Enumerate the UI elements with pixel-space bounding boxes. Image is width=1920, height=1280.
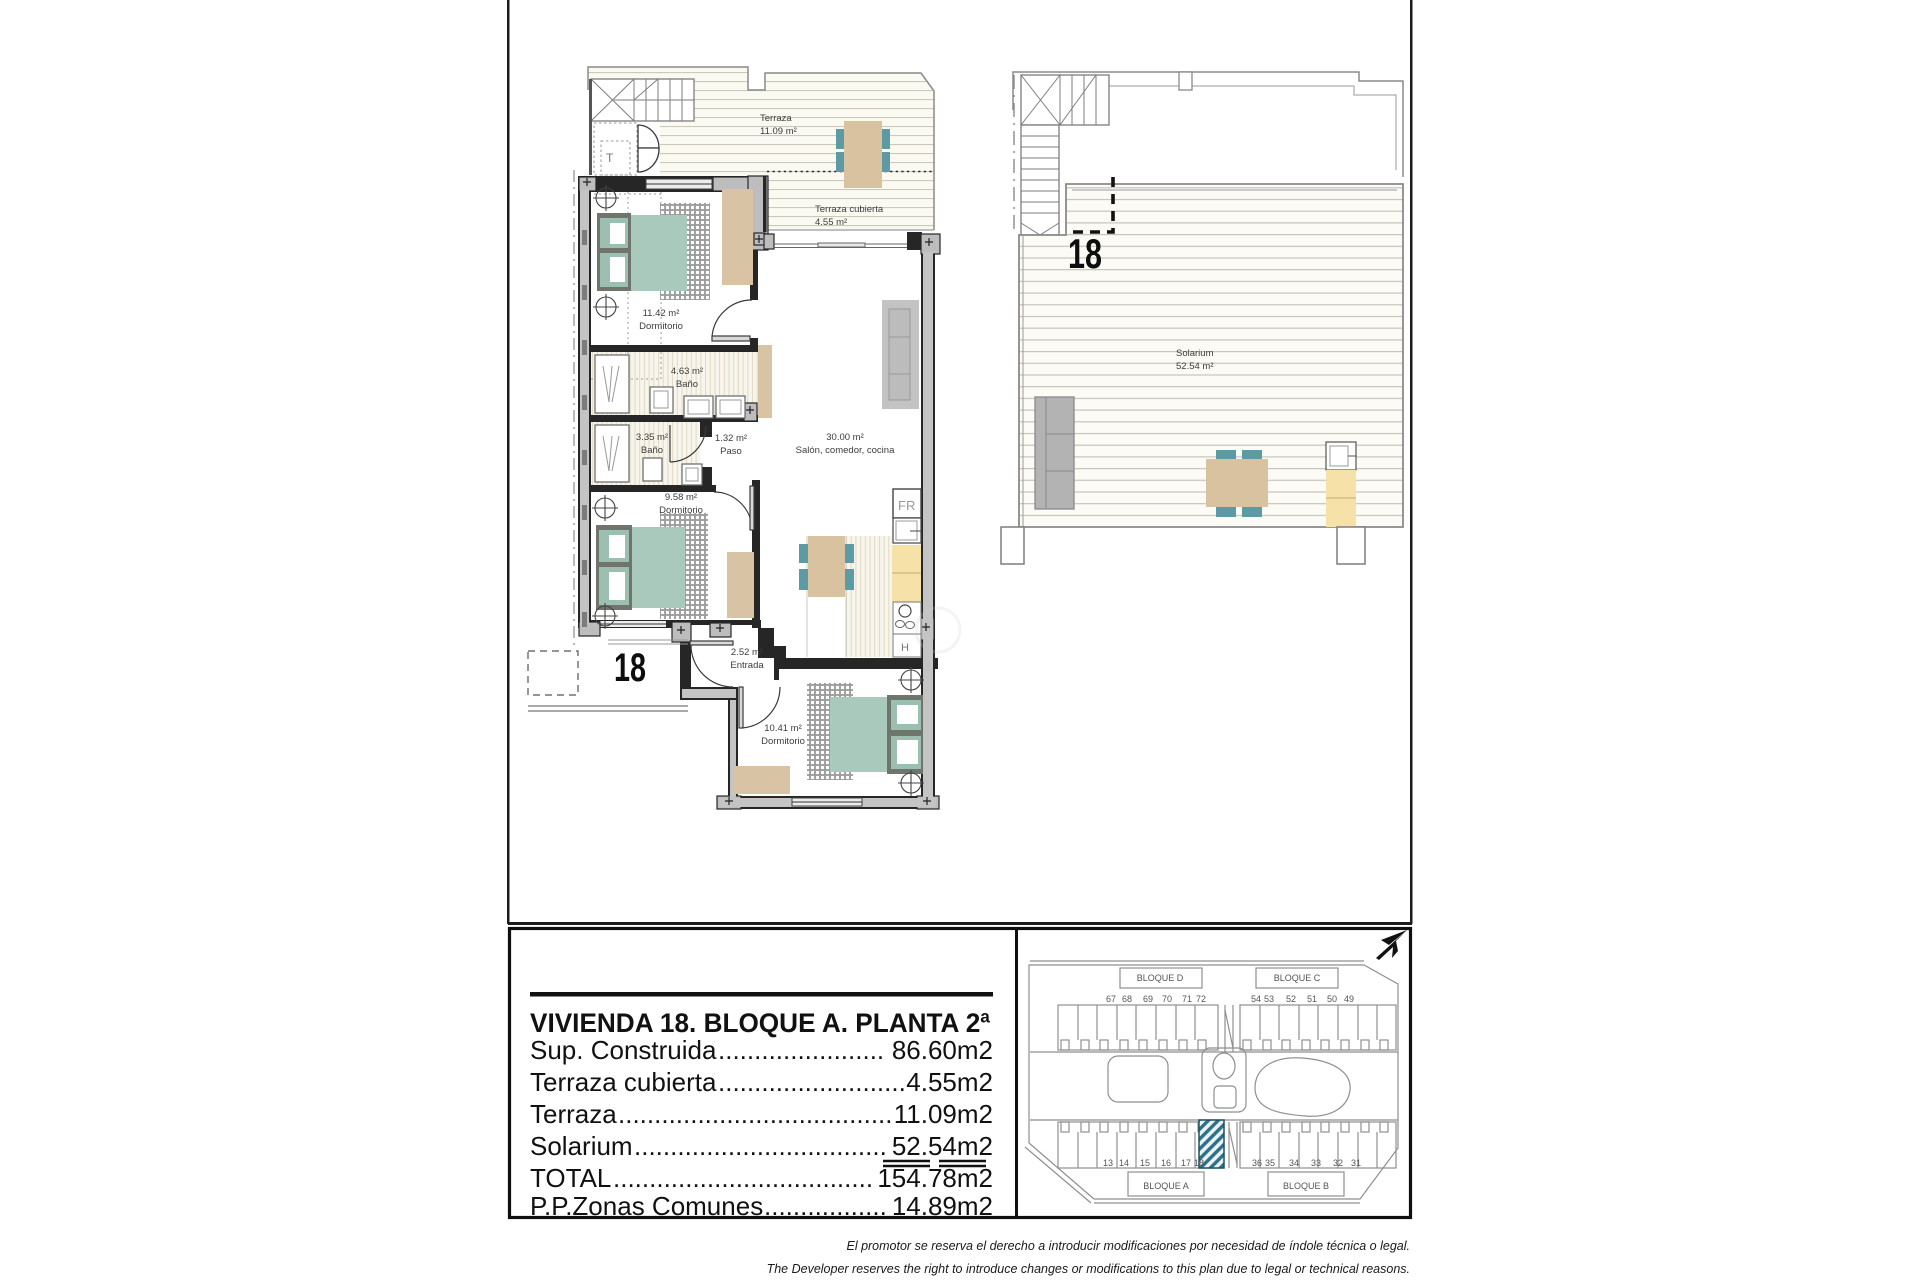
svg-text:50: 50: [1327, 994, 1337, 1004]
svg-text:3.35 m²: 3.35 m²: [636, 432, 668, 443]
svg-text:Solarium: Solarium: [530, 1131, 633, 1161]
svg-text:P.P.Zonas Comunes: P.P.Zonas Comunes: [530, 1191, 763, 1221]
svg-text:H: H: [901, 642, 909, 654]
svg-text:49: 49: [1344, 994, 1354, 1004]
svg-text:El promotor se reserva el dere: El promotor se reserva el derecho a intr…: [846, 1239, 1410, 1253]
svg-text:1.32 m²: 1.32 m²: [715, 433, 747, 444]
svg-text:52.54m2: 52.54m2: [892, 1131, 993, 1161]
svg-text:154.78m2: 154.78m2: [877, 1163, 993, 1193]
svg-text:Terraza cubierta: Terraza cubierta: [815, 204, 884, 215]
svg-text:Sup. Construida: Sup. Construida: [530, 1035, 717, 1065]
svg-text:9.58 m²: 9.58 m²: [665, 492, 697, 503]
svg-text:11.09m2: 11.09m2: [894, 1099, 993, 1129]
svg-text:Entrada: Entrada: [730, 660, 764, 671]
svg-text:Terraza cubierta: Terraza cubierta: [530, 1067, 717, 1097]
svg-text:11.09 m²: 11.09 m²: [760, 126, 797, 137]
svg-text:31: 31: [1351, 1158, 1361, 1168]
svg-text:Solarium: Solarium: [1176, 348, 1214, 359]
svg-text:4.55 m²: 4.55 m²: [815, 217, 847, 228]
svg-text:The Developer reserves the rig: The Developer reserves the right to intr…: [767, 1262, 1410, 1276]
svg-text:4.55m2: 4.55m2: [906, 1067, 993, 1097]
svg-text:BLOQUE A: BLOQUE A: [1143, 1181, 1189, 1191]
svg-text:67: 67: [1106, 994, 1116, 1004]
svg-text:71: 71: [1182, 994, 1192, 1004]
svg-text:86.60m2: 86.60m2: [892, 1035, 993, 1065]
svg-text:17: 17: [1181, 1158, 1191, 1168]
svg-text:54: 54: [1251, 994, 1261, 1004]
svg-text:VIVIENDA 18. BLOQUE A. PLANTA: VIVIENDA 18. BLOQUE A. PLANTA 2ª: [530, 1008, 990, 1038]
svg-text:69: 69: [1143, 994, 1153, 1004]
svg-text:Baño: Baño: [676, 379, 698, 390]
svg-text:Dormitorio: Dormitorio: [659, 505, 703, 516]
svg-text:33: 33: [1311, 1158, 1321, 1168]
svg-text:BLOQUE B: BLOQUE B: [1283, 1181, 1329, 1191]
svg-text:..............................: ...................................: [634, 1131, 887, 1161]
svg-text:T: T: [606, 151, 614, 165]
svg-text:52.54 m²: 52.54 m²: [1176, 361, 1214, 372]
svg-text:53: 53: [1264, 994, 1274, 1004]
svg-text:14: 14: [1119, 1158, 1129, 1168]
svg-text:13: 13: [1103, 1158, 1113, 1168]
svg-text:11.42 m²: 11.42 m²: [643, 308, 680, 319]
svg-text:36: 36: [1252, 1158, 1262, 1168]
svg-text:..........................: ..........................: [718, 1067, 906, 1097]
svg-text:52: 52: [1286, 994, 1296, 1004]
svg-text:..............................: ......................................: [618, 1099, 893, 1129]
svg-text:30.00 m²: 30.00 m²: [826, 432, 864, 443]
svg-text:15: 15: [1140, 1158, 1150, 1168]
svg-text:10.41 m²: 10.41 m²: [764, 723, 802, 734]
svg-text:BLOQUE C: BLOQUE C: [1274, 973, 1321, 983]
svg-text:70: 70: [1162, 994, 1172, 1004]
svg-text:72: 72: [1196, 994, 1206, 1004]
svg-text:.......................: .......................: [718, 1035, 884, 1065]
svg-text:..............................: ....................................: [613, 1163, 873, 1193]
svg-text:18: 18: [1194, 1158, 1204, 1168]
svg-text:16: 16: [1161, 1158, 1171, 1168]
svg-text:Dormitorio: Dormitorio: [639, 321, 683, 332]
svg-text:2.52 m²: 2.52 m²: [731, 647, 763, 658]
svg-text:68: 68: [1122, 994, 1132, 1004]
svg-text:14.89m2: 14.89m2: [892, 1191, 993, 1221]
svg-text:4.63 m²: 4.63 m²: [671, 366, 703, 377]
svg-text:Terraza: Terraza: [760, 113, 792, 124]
svg-text:BLOQUE D: BLOQUE D: [1137, 973, 1184, 983]
svg-text:32: 32: [1333, 1158, 1343, 1168]
svg-text:18: 18: [1068, 230, 1102, 277]
svg-text:TOTAL: TOTAL: [530, 1163, 611, 1193]
svg-text:Dormitorio: Dormitorio: [761, 736, 805, 747]
svg-text:Baño: Baño: [641, 445, 663, 456]
svg-text:Salón, comedor, cocina: Salón, comedor, cocina: [796, 445, 895, 456]
svg-text:FR: FR: [898, 498, 915, 513]
svg-text:35: 35: [1265, 1158, 1275, 1168]
svg-text:Terraza: Terraza: [530, 1099, 617, 1129]
svg-text:18: 18: [614, 646, 646, 690]
svg-text:Paso: Paso: [720, 446, 742, 457]
svg-text:51: 51: [1307, 994, 1317, 1004]
svg-text:.................: .................: [764, 1191, 887, 1221]
svg-text:34: 34: [1289, 1158, 1299, 1168]
